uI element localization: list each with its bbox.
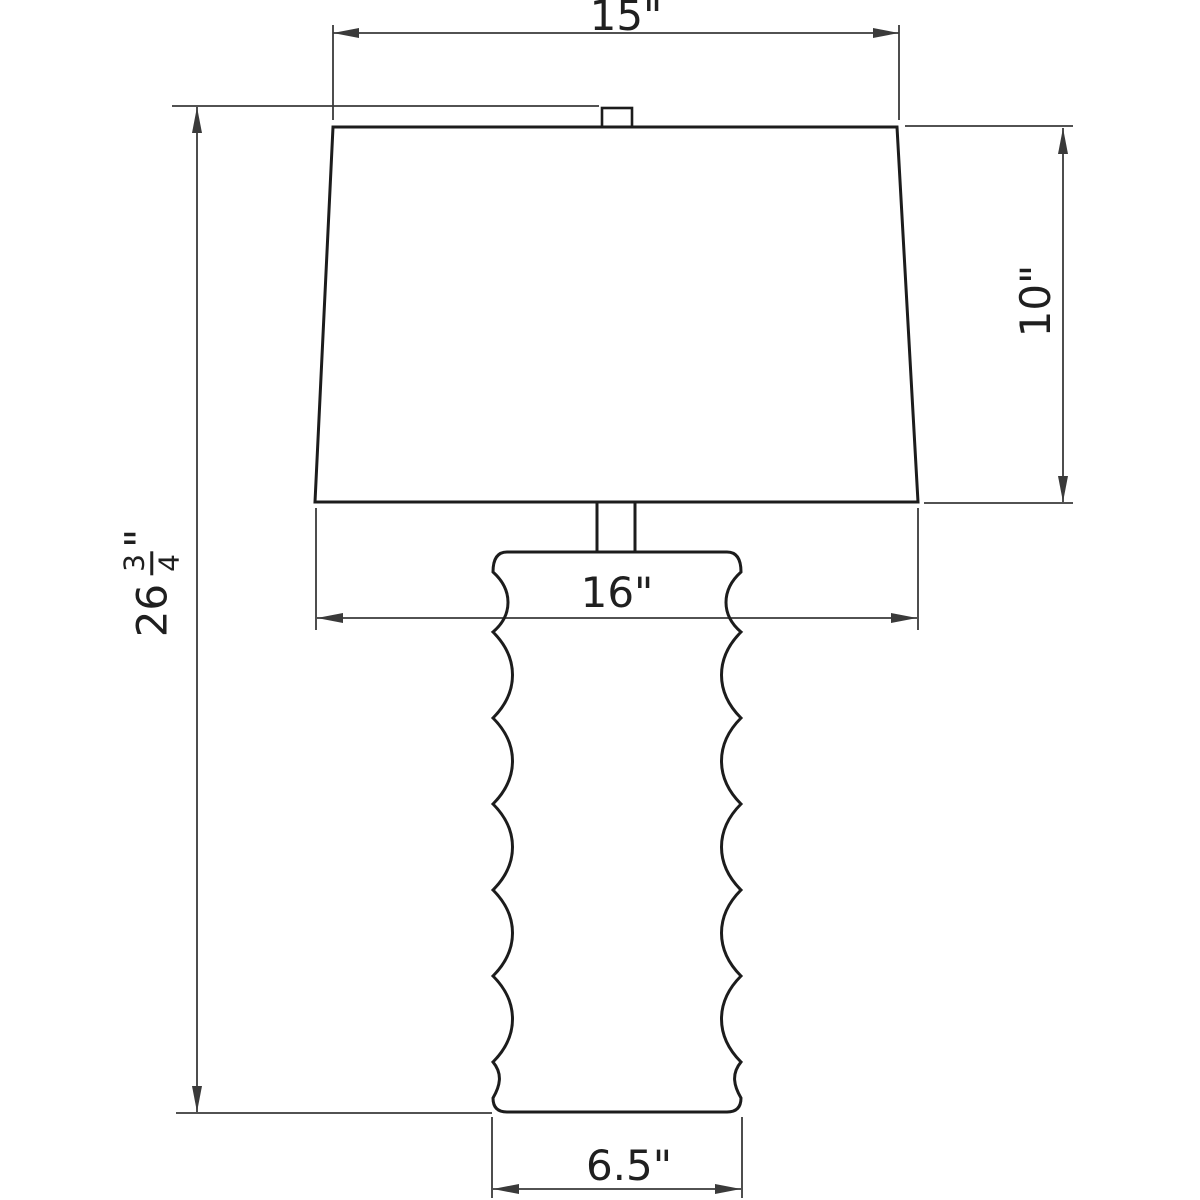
dimension-label-base-width: 6.5" — [586, 1145, 672, 1187]
arrowhead-down-icon — [192, 1086, 202, 1112]
lamp-body-outline — [493, 552, 741, 1112]
arrowhead-left-icon — [493, 1184, 519, 1194]
lamp-technical-drawing: 15" 10" 26 3 4 " 16" 6.5" — [0, 0, 1200, 1200]
total-height-whole: 26 — [131, 584, 173, 637]
total-height-denominator: 4 — [154, 554, 185, 572]
arrowhead-left-icon — [317, 613, 343, 623]
dimension-label-shade-bottom-width: 16" — [581, 572, 654, 614]
dimension-label-shade-top-width: 15" — [590, 0, 663, 37]
arrowhead-up-icon — [1058, 128, 1068, 154]
total-height-numerator: 3 — [119, 551, 153, 575]
total-height-fraction: 3 4 — [119, 551, 184, 575]
dimension-label-total-height: 26 3 4 " — [119, 529, 184, 638]
total-height-unit: " — [119, 529, 161, 548]
dimension-label-shade-height: 10" — [1015, 265, 1057, 338]
arrowhead-left-icon — [333, 28, 359, 38]
lamp-shade-outline — [315, 127, 918, 502]
arrowhead-right-icon — [873, 28, 899, 38]
arrowhead-up-icon — [192, 107, 202, 133]
arrowhead-down-icon — [1058, 476, 1068, 502]
arrowhead-right-icon — [891, 613, 917, 623]
finial — [602, 108, 632, 127]
arrowhead-right-icon — [715, 1184, 741, 1194]
